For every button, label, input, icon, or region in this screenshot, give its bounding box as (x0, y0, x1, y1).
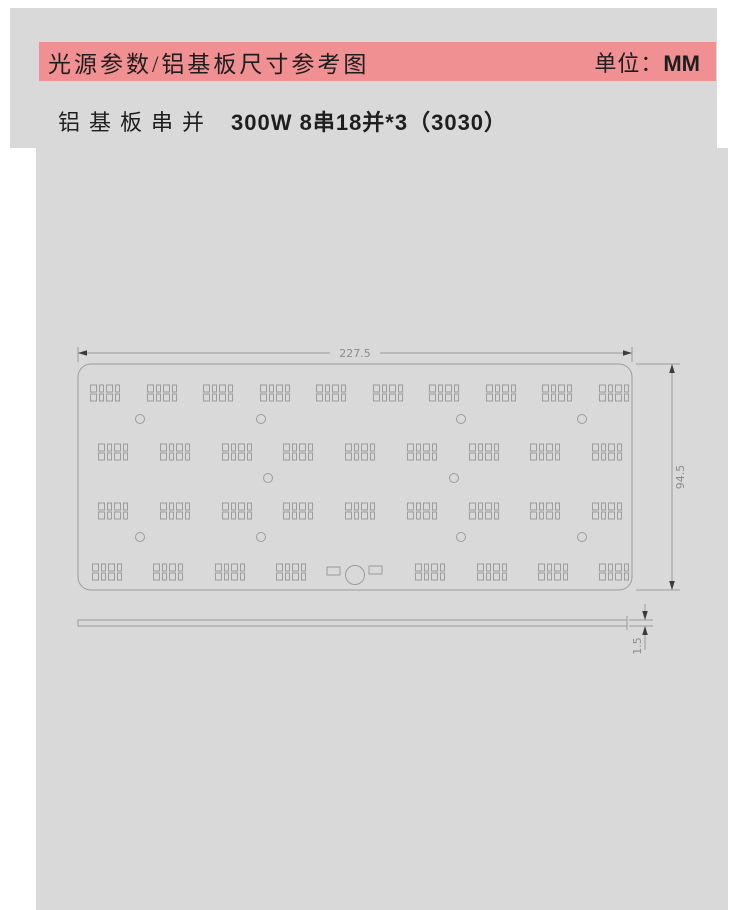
spec-subtitle: 铝基板串并 300W 8串18并*3（3030） (58, 106, 507, 136)
page: 227.594.51.5 光源参数/铝基板尺寸参考图 单位：MM 铝基板串并 3… (0, 0, 750, 910)
header-bar: 光源参数/铝基板尺寸参考图 单位：MM (39, 42, 716, 81)
content-panel-main (36, 148, 728, 910)
subtitle-prefix: 铝基板串并 (58, 105, 213, 137)
unit-caption: 单位： (594, 51, 663, 76)
unit-value: MM (663, 51, 700, 76)
unit-label: 单位：MM (594, 46, 700, 78)
subtitle-spec: 300W 8串18并*3（3030） (231, 105, 507, 137)
page-title: 光源参数/铝基板尺寸参考图 (48, 45, 369, 79)
